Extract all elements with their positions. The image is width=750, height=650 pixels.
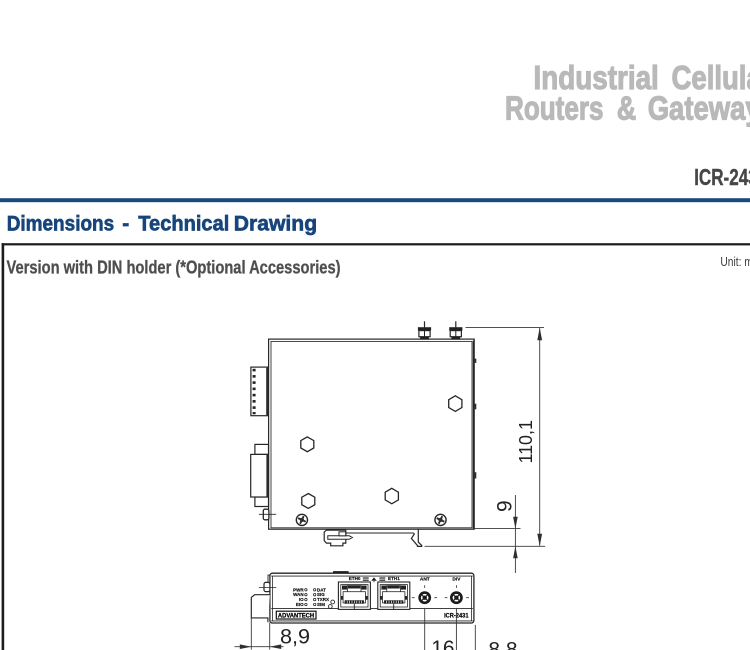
svg-text:8,8: 8,8 xyxy=(488,638,517,650)
svg-text:8,9: 8,9 xyxy=(280,623,310,648)
svg-text:Version with DIN holder (*Opti: Version with DIN holder (*Optional Acces… xyxy=(7,257,341,278)
svg-text:16: 16 xyxy=(431,637,454,650)
svg-text:Dimensions: Dimensions xyxy=(7,211,115,236)
svg-text:ETH0: ETH0 xyxy=(349,576,361,581)
svg-text:ADVANTECH: ADVANTECH xyxy=(278,613,315,620)
svg-text:110,1: 110,1 xyxy=(516,420,536,464)
svg-text:DIV: DIV xyxy=(452,576,461,582)
svg-text:ETH1: ETH1 xyxy=(388,576,400,581)
svg-text:ANT: ANT xyxy=(420,576,430,582)
svg-text:-: - xyxy=(122,211,129,236)
svg-text:Technical: Technical xyxy=(138,211,229,236)
svg-text:9: 9 xyxy=(494,500,517,512)
svg-text:&: & xyxy=(617,90,637,127)
svg-text:Unit: mm: Unit: mm xyxy=(720,254,750,269)
svg-text:Drawing: Drawing xyxy=(234,211,317,236)
svg-text:Routers: Routers xyxy=(505,90,604,127)
svg-text:ICR-2431: ICR-2431 xyxy=(694,164,750,190)
svg-text:SIM: SIM xyxy=(317,602,325,607)
svg-text:Gateways: Gateways xyxy=(648,90,750,127)
svg-text:EIO: EIO xyxy=(296,602,304,607)
